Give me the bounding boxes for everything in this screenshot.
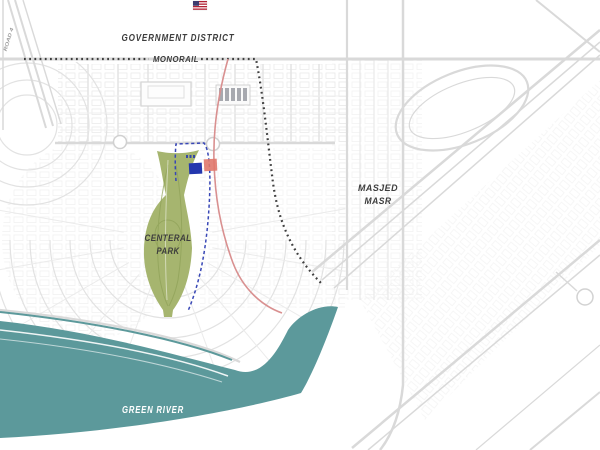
government-district-label: GOVERNMENT DISTRICT [122, 33, 235, 44]
tiny-plot-annotation [186, 155, 195, 158]
masterplan-map: GOVERNMENT DISTRICT MONORAIL CENTERAL PA… [0, 0, 600, 450]
map-canvas: GOVERNMENT DISTRICT MONORAIL CENTERAL PA… [0, 0, 600, 450]
roundabout-east [207, 138, 220, 151]
green-river-label: GREEN RIVER [122, 405, 184, 416]
roundabout-southeast [577, 289, 593, 305]
roundabout-west [114, 136, 127, 149]
masjed-masr-label-line1: MASJED [358, 183, 398, 194]
masjed-masr-label-line2: MASR [365, 196, 392, 207]
us-flag-icon [193, 1, 207, 10]
central-park-label-line1: CENTERAL [145, 233, 192, 244]
central-park-label-line2: PARK [157, 246, 181, 257]
plot-blue [189, 163, 203, 175]
monorail-label: MONORAIL [153, 55, 199, 64]
plot-red [204, 159, 218, 172]
